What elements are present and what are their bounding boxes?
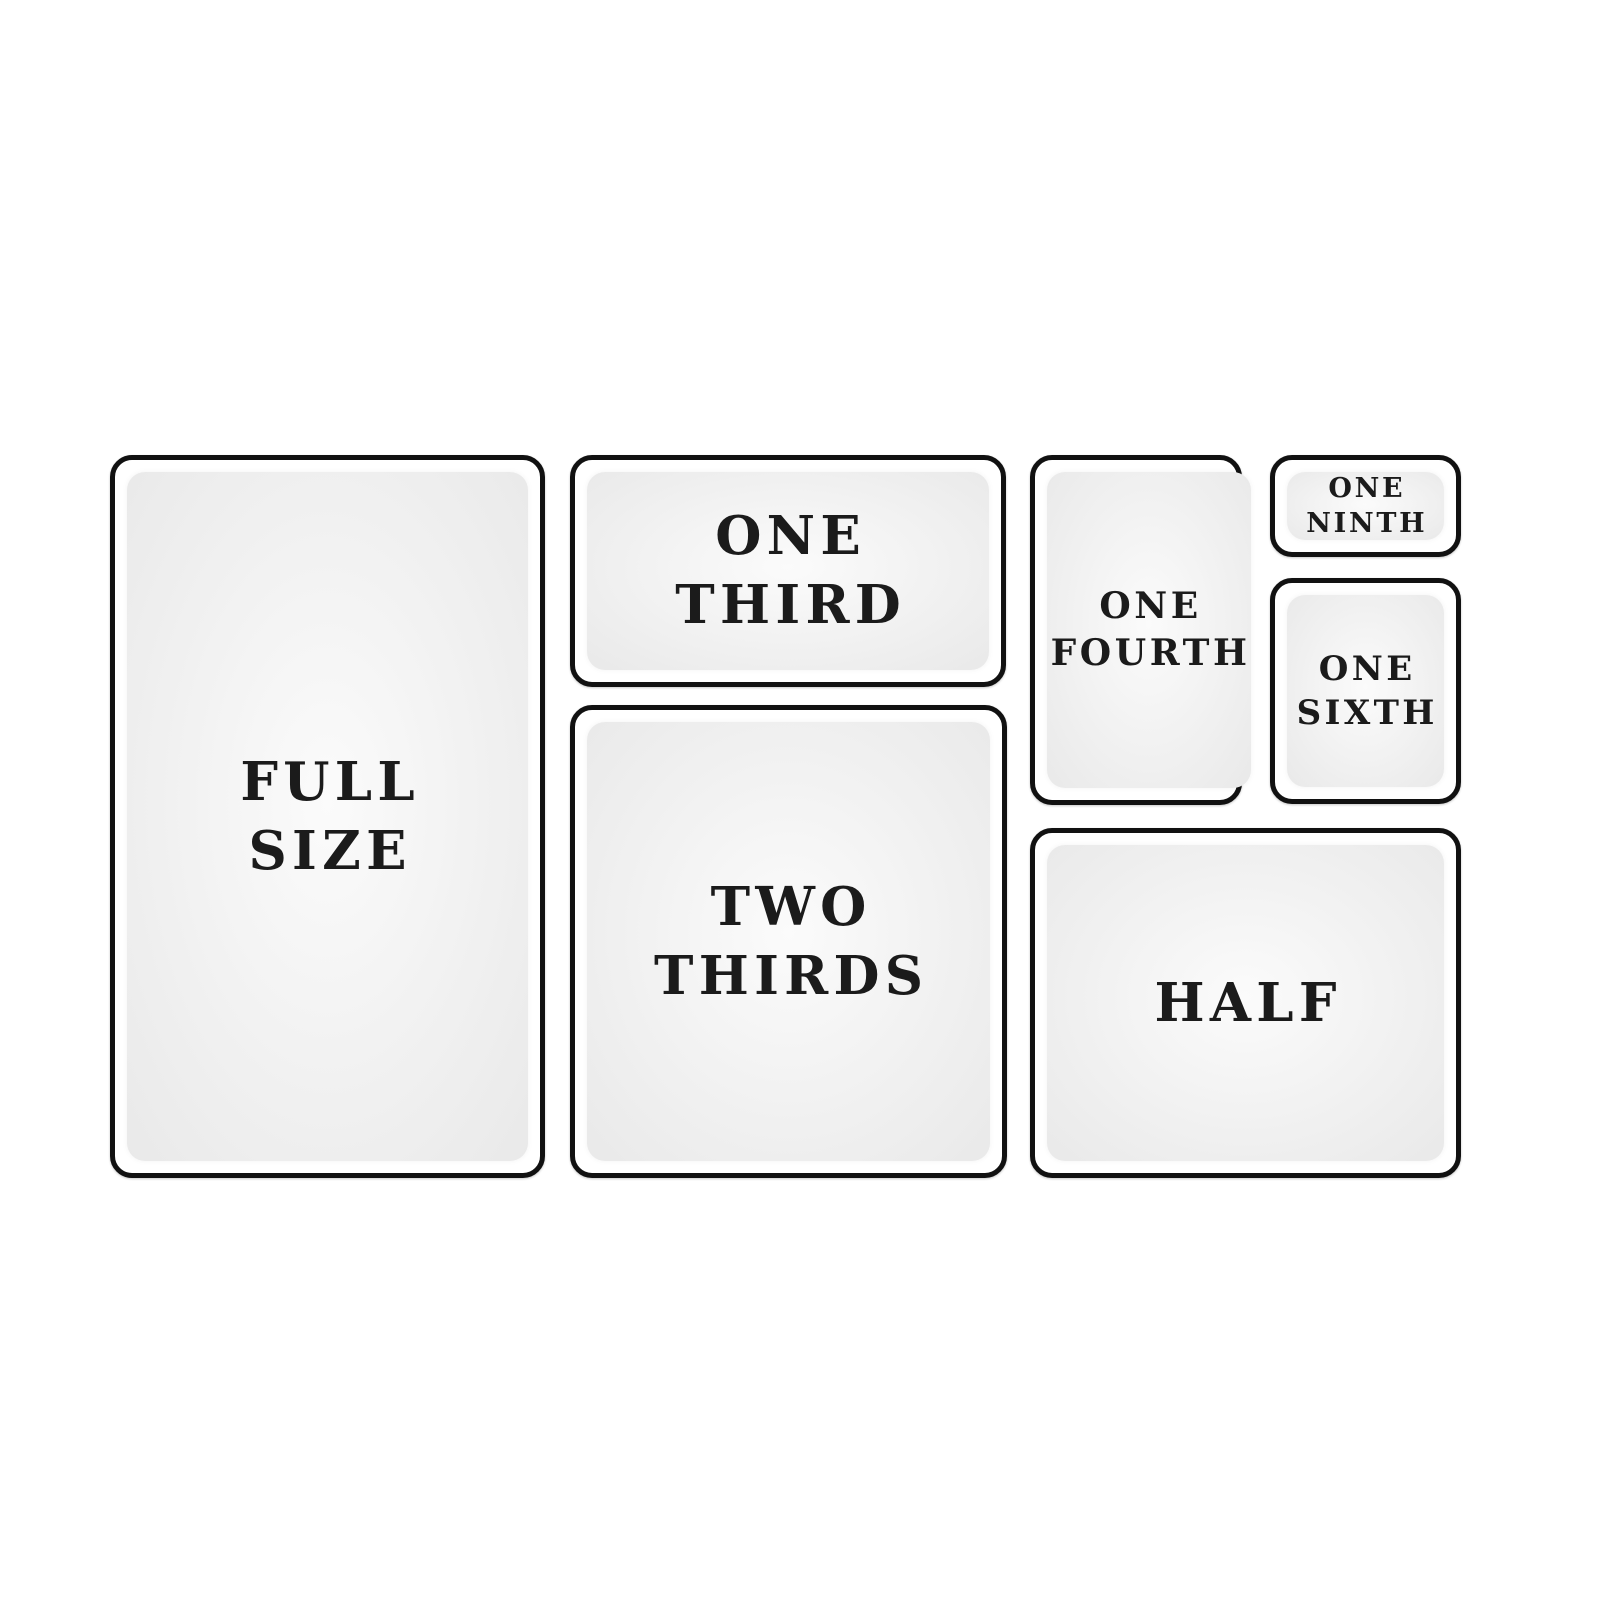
pan-label-line: THIRDS [649, 942, 929, 1011]
pan-label-line: SIZE [243, 817, 412, 886]
pan-label-line: HALF [1149, 969, 1342, 1038]
pan-label-line: ONE [710, 502, 866, 571]
pan-one-fourth: ONEFOURTH [1030, 455, 1242, 805]
pan-label-one-third: ONETHIRD [670, 502, 906, 640]
pan-inner-surface: FULLSIZE [127, 472, 528, 1161]
pan-label-line: THIRD [670, 571, 906, 640]
pan-inner-surface: ONENINTH [1287, 472, 1444, 540]
pan-inner-surface: HALF [1047, 845, 1444, 1161]
pan-label-one-ninth: ONENINTH [1304, 471, 1428, 541]
pan-inner-surface: ONESIXTH [1287, 595, 1444, 787]
pan-inner-surface: TWOTHIRDS [587, 722, 990, 1161]
pan-label-half: HALF [1149, 969, 1342, 1038]
pan-label-full-size: FULLSIZE [235, 748, 420, 886]
pan-one-third: ONETHIRD [570, 455, 1006, 687]
pan-two-thirds: TWOTHIRDS [570, 705, 1007, 1178]
pan-inner-surface: ONEFOURTH [1047, 472, 1251, 788]
pan-label-line: NINTH [1304, 506, 1428, 541]
pan-label-line: TWO [705, 873, 871, 942]
pan-label-two-thirds: TWOTHIRDS [649, 873, 929, 1011]
pan-full-size: FULLSIZE [110, 455, 545, 1178]
pan-half: HALF [1030, 828, 1461, 1178]
pan-label-line: ONE [1096, 583, 1202, 630]
pan-label-line: ONE [1326, 471, 1406, 506]
pan-inner-surface: ONETHIRD [587, 472, 989, 670]
pan-label-line: FOURTH [1047, 630, 1251, 677]
pan-size-diagram: FULLSIZEONETHIRDTWOTHIRDSONEFOURTHONENIN… [0, 0, 1600, 1600]
pan-one-sixth: ONESIXTH [1270, 578, 1461, 804]
pan-label-line: ONE [1315, 647, 1415, 691]
pan-label-line: SIXTH [1293, 691, 1438, 735]
pan-one-ninth: ONENINTH [1270, 455, 1461, 557]
pan-label-one-sixth: ONESIXTH [1293, 647, 1438, 735]
pan-label-one-fourth: ONEFOURTH [1047, 583, 1251, 677]
pan-label-line: FULL [235, 748, 420, 817]
